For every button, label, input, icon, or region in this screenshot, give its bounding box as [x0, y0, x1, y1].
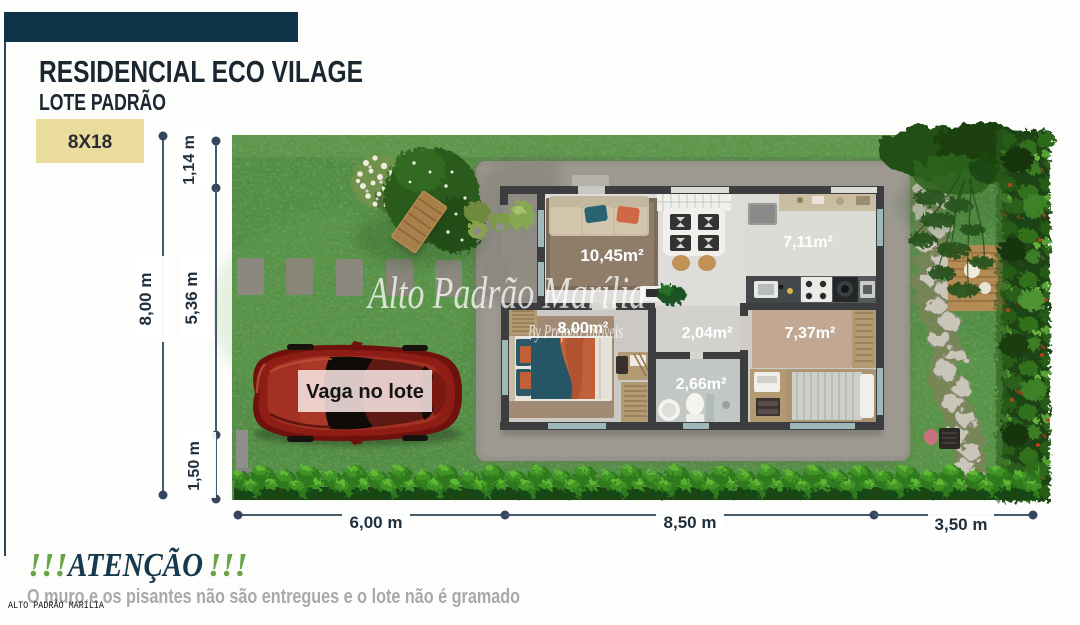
svg-text:7,37m²: 7,37m² — [785, 325, 836, 342]
svg-text:RESIDENCIAL ECO VILAGE: RESIDENCIAL ECO VILAGE — [39, 54, 363, 89]
svg-text:3,50 m: 3,50 m — [935, 515, 988, 534]
svg-text:7,11m²: 7,11m² — [783, 234, 833, 251]
svg-text:!!!: !!! — [28, 547, 68, 584]
svg-text:Vaga no lote: Vaga no lote — [306, 381, 424, 403]
svg-text:2,66m²: 2,66m² — [676, 376, 727, 393]
svg-text:ALTO PADRÃO MARÍLIA: ALTO PADRÃO MARÍLIA — [8, 598, 104, 612]
svg-text:!!!: !!! — [208, 547, 248, 584]
svg-text:By Prefeito Imóveis: By Prefeito Imóveis — [528, 321, 623, 343]
svg-text:Alto Padrão Marília: Alto Padrão Marília — [366, 268, 646, 318]
svg-text:2,04m²: 2,04m² — [682, 325, 733, 342]
svg-text:8,00 m: 8,00 m — [136, 273, 155, 326]
svg-text:1,14 m: 1,14 m — [181, 135, 198, 185]
svg-text:ATENÇÃO: ATENÇÃO — [66, 547, 203, 584]
svg-text:LOTE PADRÃO: LOTE PADRÃO — [39, 88, 166, 115]
svg-text:8,50 m: 8,50 m — [664, 513, 717, 532]
svg-text:8X18: 8X18 — [68, 132, 112, 153]
svg-text:1,50 m: 1,50 m — [186, 441, 203, 491]
svg-text:10,45m²: 10,45m² — [580, 246, 644, 265]
svg-text:6,00 m: 6,00 m — [350, 513, 403, 532]
svg-text:5,36 m: 5,36 m — [182, 272, 201, 325]
